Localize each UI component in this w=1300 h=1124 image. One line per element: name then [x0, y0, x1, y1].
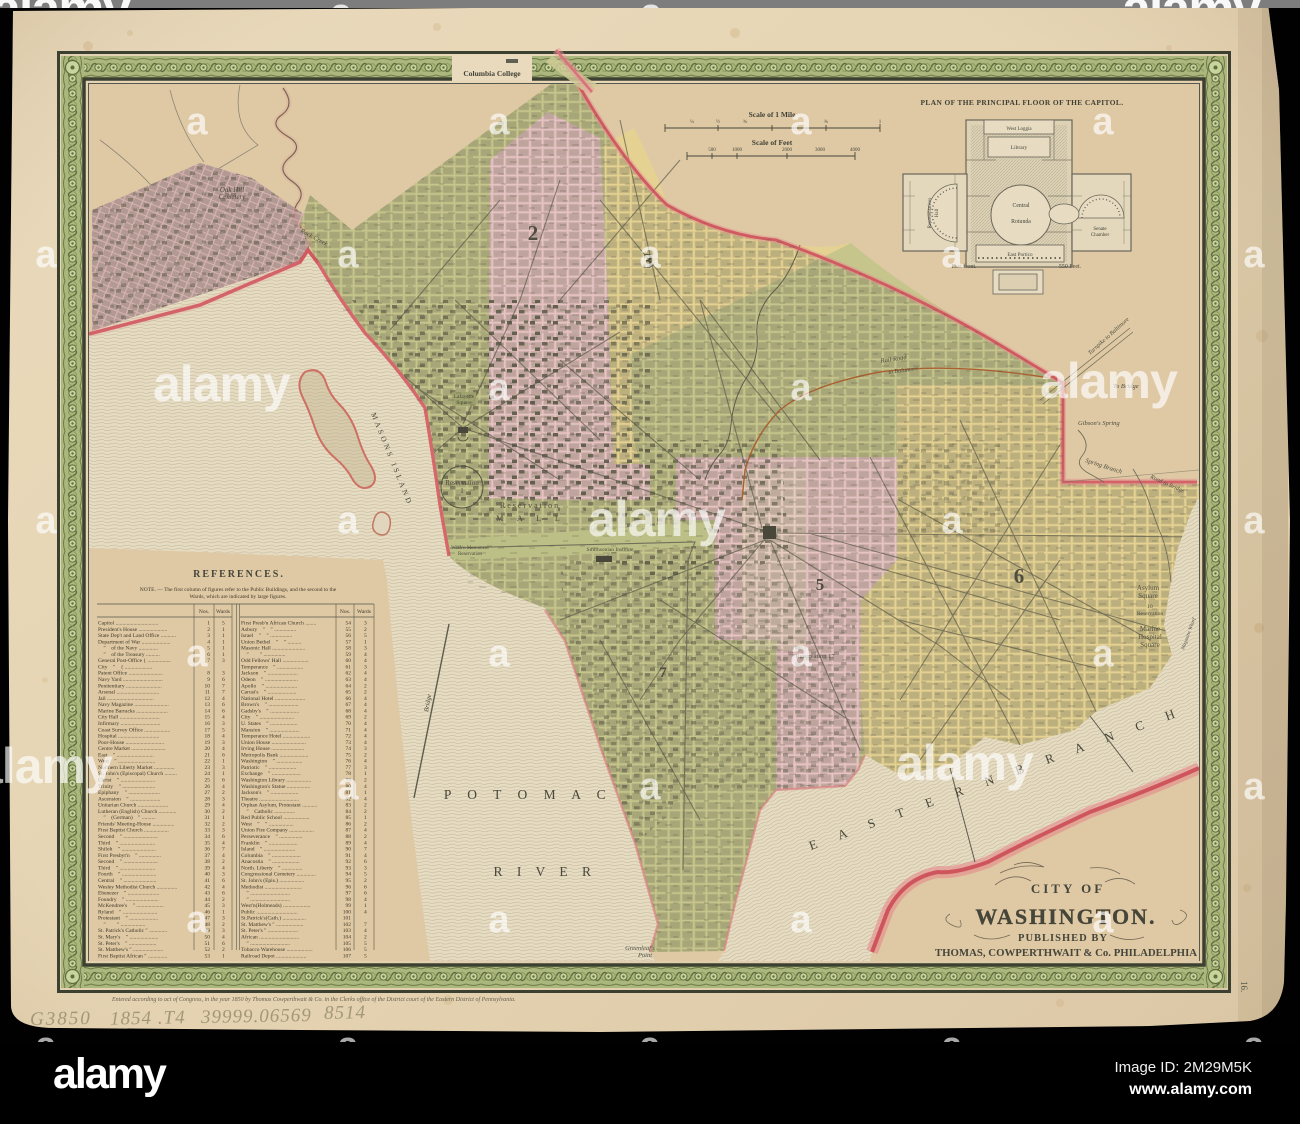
svg-text:4: 4: [364, 727, 367, 733]
svg-text:¾: ¾: [824, 120, 828, 125]
svg-text:2: 2: [207, 627, 210, 633]
svg-text:6: 6: [222, 891, 225, 897]
svg-text:6: 6: [222, 702, 225, 708]
svg-text:2: 2: [222, 790, 225, 796]
svg-text:First Baptist Church .........: First Baptist Church ..................: [98, 828, 169, 834]
svg-text:102: 102: [343, 922, 352, 928]
svg-text:Washington's Statue ..........: Washington's Statue .................: [241, 784, 311, 790]
svg-text:74: 74: [346, 746, 352, 752]
svg-text:Wards, which are indicated by: Wards, which are indicated by large figu…: [190, 593, 288, 600]
svg-text:Nos.: Nos.: [340, 609, 351, 615]
svg-text:Congressional Cemetery .......: Congressional Cemetery ..............: [241, 872, 316, 878]
svg-text:www.alamy.com: www.alamy.com: [1128, 1081, 1252, 1098]
svg-text:37: 37: [205, 853, 211, 859]
svg-text:Jackson's ″ ...............: Jackson's ″ ....................: [241, 790, 299, 796]
svg-text:Second ″ ..................: Second ″ .........................: [98, 859, 158, 865]
svg-text:14: 14: [205, 708, 211, 714]
svg-text:42: 42: [205, 884, 211, 890]
svg-text:53: 53: [205, 953, 211, 959]
svg-text:Protestant ″ ..............: Protestant ″ .....................: [98, 916, 159, 922]
svg-text:20: 20: [205, 746, 211, 752]
svg-text:REFERENCES.: REFERENCES.: [193, 569, 285, 580]
svg-text:West'n(Holmeads) .............: West'n(Holmeads) ....................: [241, 902, 311, 909]
svg-text:3: 3: [222, 765, 225, 771]
svg-text:National Hotel ...............: National Hotel ......................: [241, 696, 306, 702]
svg-text:7: 7: [222, 683, 225, 689]
svg-text:Central: Central: [1012, 203, 1029, 209]
svg-text:2: 2: [222, 947, 225, 953]
svg-text:″ ............................: ″ .............................: [241, 891, 291, 897]
svg-text:4: 4: [207, 639, 210, 645]
svg-text:63: 63: [346, 677, 352, 683]
svg-text:64: 64: [346, 683, 352, 689]
svg-text:Apollo ″ ..................: Apollo ″ .......................: [241, 683, 298, 689]
svg-text:6: 6: [222, 941, 225, 947]
svg-text:a: a: [639, 234, 661, 276]
svg-text:105: 105: [343, 941, 352, 947]
svg-text:4: 4: [364, 702, 367, 708]
svg-text:5: 5: [364, 872, 367, 878]
svg-text:″ ″ ..................: ″ ″ ..................: [98, 922, 146, 928]
svg-text:President's House ............: President's House .....................: [98, 627, 168, 633]
svg-text:31: 31: [205, 815, 211, 821]
svg-text:a: a: [186, 633, 208, 675]
svg-text:2: 2: [222, 859, 225, 865]
svg-text:6: 6: [364, 859, 367, 865]
svg-text:Department of War ............: Department of War .....................: [98, 638, 171, 645]
svg-text:73: 73: [346, 740, 352, 746]
svg-text:92: 92: [346, 859, 352, 865]
svg-text:Union House ..................: Union House .........................: [241, 740, 307, 746]
svg-text:Jackson ″ .................: Jackson ″ ......................: [241, 671, 298, 677]
svg-text:4: 4: [364, 740, 367, 746]
svg-text:62: 62: [346, 671, 352, 677]
svg-text:1: 1: [364, 771, 367, 777]
svg-text:2000: 2000: [782, 148, 793, 153]
svg-text:72: 72: [346, 734, 352, 740]
svg-text:City ″ { ...............: City ″ { ....................: [98, 665, 153, 671]
svg-text:94: 94: [346, 872, 352, 878]
svg-text:6: 6: [364, 891, 367, 897]
svg-text:89: 89: [346, 840, 352, 846]
svg-text:3: 3: [207, 633, 210, 639]
svg-text:Railroad Depot ...............: Railroad Depot ......................: [241, 953, 307, 959]
svg-text:16.: 16.: [1239, 981, 1249, 992]
svg-text:Patent Office ................: Patent Office .........................: [98, 670, 163, 677]
svg-text:U. States ″ ...............: U. States ″ ....................: [241, 721, 298, 727]
svg-text:Brown's ″ .................: Brown's ″ ......................: [241, 702, 299, 708]
svg-text:1: 1: [222, 639, 225, 645]
svg-text:6: 6: [222, 834, 225, 840]
svg-text:19: 19: [205, 740, 211, 746]
svg-text:a: a: [186, 101, 208, 143]
svg-text:Scale of 1 Mile: Scale of 1 Mile: [749, 110, 797, 119]
svg-text:91: 91: [346, 853, 352, 859]
svg-text:alamy: alamy: [1040, 353, 1178, 409]
svg-text:Temperance Hotel .............: Temperance Hotel ....................: [241, 734, 311, 740]
svg-text:2: 2: [222, 809, 225, 815]
svg-text:″ ............................: ″ .............................: [241, 897, 291, 903]
svg-text:Masonic Hall .................: Masonic Hall ........................: [241, 646, 306, 652]
svg-text:2: 2: [364, 878, 367, 884]
svg-text:24: 24: [205, 771, 211, 777]
svg-text:Ebenezer ″ ................: Ebenezer ″ .......................: [98, 891, 160, 897]
svg-text:4: 4: [364, 784, 367, 790]
svg-text:98: 98: [346, 897, 352, 903]
svg-text:Washington ″ ..............: Washington ″ ...................: [241, 759, 303, 765]
svg-text:a: a: [790, 633, 812, 675]
svg-text:″ of the Navy .............: ″ of the Navy ..............: [98, 645, 159, 652]
svg-text:Odeon ″ ...................: Odeon ″ ........................: [241, 677, 298, 683]
svg-text:a: a: [488, 367, 510, 409]
svg-text:68: 68: [346, 708, 352, 714]
svg-text:39999.06569: 39999.06569: [200, 1005, 312, 1028]
svg-text:St. Peter's ″ ...............: St. Peter's ″ ......................: [241, 928, 299, 934]
svg-text:1: 1: [222, 815, 225, 821]
svg-text:4: 4: [222, 784, 225, 790]
svg-text:Wards: Wards: [216, 609, 230, 615]
svg-text:16: 16: [205, 721, 211, 727]
svg-text:″ (German) ″ ..........: ″ (German) ″ ..........: [98, 814, 156, 821]
svg-text:Columbia College: Columbia College: [463, 69, 521, 78]
svg-text:Scale of Feet: Scale of Feet: [752, 138, 793, 147]
svg-text:71: 71: [346, 727, 352, 733]
svg-text:4: 4: [222, 715, 225, 721]
svg-text:33: 33: [205, 828, 211, 834]
svg-text:3: 3: [364, 746, 367, 752]
svg-text:1: 1: [222, 627, 225, 633]
svg-text:21: 21: [205, 752, 211, 758]
svg-text:Israel ″ ″ .............: Israel ″ ″ ................: [241, 633, 293, 639]
svg-text:70: 70: [346, 721, 352, 727]
svg-text:North. Liberty ″ ..........: North. Liberty ″ ...............: [241, 865, 303, 871]
svg-text:3: 3: [222, 916, 225, 922]
svg-text:a: a: [488, 899, 510, 941]
svg-text:alamy: alamy: [153, 356, 291, 412]
svg-text:5: 5: [207, 646, 210, 652]
svg-text:4: 4: [222, 734, 225, 740]
svg-text:Unitarian Church .............: Unitarian Church ......................: [98, 803, 169, 809]
svg-text:6: 6: [222, 677, 225, 683]
svg-text:55: 55: [346, 627, 352, 633]
svg-text:State Dep't and Land Office ..: State Dep't and Land Office ...........: [98, 632, 176, 639]
svg-text:2: 2: [364, 683, 367, 689]
svg-text:a: a: [790, 899, 812, 941]
svg-text:30: 30: [205, 809, 211, 815]
svg-text:8: 8: [207, 671, 210, 677]
svg-text:96: 96: [346, 884, 352, 890]
svg-text:4: 4: [364, 897, 367, 903]
svg-text:Anacostia ″ ...............: Anacostia ″ ....................: [241, 859, 300, 865]
svg-text:4: 4: [222, 853, 225, 859]
svg-text:a: a: [488, 633, 510, 675]
svg-text:17: 17: [205, 727, 211, 733]
svg-text:2: 2: [364, 809, 367, 815]
svg-text:Chamber: Chamber: [1091, 233, 1110, 238]
svg-text:Theatre ......................: Theatre .............................: [241, 796, 300, 802]
svg-text:75: 75: [346, 752, 352, 758]
svg-text:2: 2: [364, 627, 367, 633]
svg-text:28: 28: [205, 796, 211, 802]
svg-text:7: 7: [222, 847, 225, 853]
svg-text:a: a: [488, 101, 510, 143]
svg-text:500: 500: [708, 148, 716, 153]
svg-text:Infirmary ....................: Infirmary .............................: [98, 720, 161, 727]
svg-text:12: 12: [205, 696, 211, 702]
svg-text:Marine Barracks ..............: Marine Barracks .......................: [98, 708, 168, 714]
svg-text:35: 35: [205, 840, 211, 846]
svg-text:Ryland ″ ..................: Ryland ″ .........................: [98, 909, 158, 915]
svg-text:Mansion ″ .................: Mansion ″ ......................: [241, 727, 300, 733]
svg-text:Methodist ....................: Methodist ...........................: [241, 884, 302, 890]
svg-text:2: 2: [364, 834, 367, 840]
svg-text:West ″ ″ ...............: West ″ ″ ..................: [241, 822, 294, 828]
svg-text:Metropolis Bank ..............: Metropolis Bank .....................: [241, 752, 309, 758]
svg-text:3000: 3000: [815, 148, 826, 153]
svg-text:4: 4: [364, 721, 367, 727]
svg-text:107: 107: [343, 953, 352, 959]
svg-text:a: a: [35, 500, 57, 542]
svg-text:5: 5: [364, 633, 367, 639]
svg-text:5: 5: [222, 727, 225, 733]
svg-text:alamy: alamy: [53, 1050, 167, 1098]
svg-text:a: a: [337, 766, 359, 808]
svg-text:4: 4: [222, 935, 225, 941]
svg-text:Carusi's ″ ................: Carusi's ″ .....................: [241, 690, 297, 696]
svg-text:a: a: [337, 234, 359, 276]
svg-text:Tobacco Warehouse ............: Tobacco Warehouse ...................: [241, 947, 313, 953]
svg-text:4: 4: [364, 909, 367, 915]
svg-text:3: 3: [222, 828, 225, 834]
svg-text:88: 88: [346, 834, 352, 840]
svg-text:Public .......................: Public ..............................: [241, 909, 298, 915]
svg-text:6: 6: [364, 884, 367, 890]
svg-text:4: 4: [364, 671, 367, 677]
svg-text:5: 5: [364, 953, 367, 959]
svg-text:4: 4: [364, 677, 367, 683]
svg-text:St. Matthew's ″ .............: St. Matthew's ″ ....................: [241, 922, 304, 928]
svg-text:1000: 1000: [732, 148, 743, 153]
svg-text:Asbury ″ ″ .............: Asbury ″ ″ ................: [241, 627, 297, 633]
svg-text:Union Bethel ″ ″ .......: Union Bethel ″ ″ ..........: [241, 639, 302, 645]
svg-text:Navy Yard ....................: Navy Yard .............................: [98, 677, 163, 683]
svg-text:alamy: alamy: [588, 491, 726, 547]
svg-text:103: 103: [343, 928, 352, 934]
svg-text:a: a: [941, 500, 963, 542]
svg-text:Wards: Wards: [357, 609, 371, 615]
svg-text:1: 1: [222, 646, 225, 652]
svg-text:60: 60: [346, 658, 352, 664]
svg-text:a: a: [1092, 101, 1114, 143]
svg-text:4: 4: [364, 708, 367, 714]
svg-text:13: 13: [205, 702, 211, 708]
svg-text:Washington Library ...........: Washington Library ..................: [241, 778, 312, 784]
svg-text:1: 1: [222, 633, 225, 639]
svg-text:City Hall ....................: City Hall .............................: [98, 715, 160, 721]
svg-text:City ″ ....................: City ″ .........................: [241, 715, 295, 721]
svg-text:Representatives: Representatives: [928, 198, 933, 229]
svg-text:a: a: [1243, 234, 1265, 276]
svg-text:6: 6: [222, 778, 225, 784]
svg-text:Temperance ″ ..............: Temperance ″ ...................: [241, 665, 304, 671]
svg-text:Central ″ .................: Central ″ ........................: [98, 878, 157, 884]
svg-text:2: 2: [364, 822, 367, 828]
svg-text:32: 32: [205, 822, 211, 828]
svg-text:54: 54: [346, 621, 352, 627]
svg-text:1: 1: [222, 759, 225, 765]
svg-text:a: a: [639, 766, 661, 808]
svg-text:8514: 8514: [324, 1002, 366, 1024]
svg-text:5: 5: [222, 621, 225, 627]
svg-text:29: 29: [205, 803, 211, 809]
svg-text:4: 4: [364, 840, 367, 846]
svg-text:87: 87: [346, 828, 352, 834]
svg-text:a: a: [35, 234, 57, 276]
svg-text:″ ............................: ″ .............................: [241, 941, 291, 947]
svg-text:1: 1: [222, 909, 225, 915]
svg-text:2: 2: [364, 752, 367, 758]
svg-text:10: 10: [205, 683, 211, 689]
svg-text:a: a: [790, 367, 812, 409]
svg-text:Red Public School ............: Red Public School ...................: [241, 815, 310, 821]
svg-text:a: a: [186, 899, 208, 941]
svg-text:Jail .........................: Jail ..................................: [98, 696, 154, 702]
svg-text:Columbia ″ ................: Columbia ″ .....................: [241, 853, 301, 859]
svg-text:4: 4: [364, 652, 367, 658]
svg-text:McKendree's ″ .............: McKendree's ″ ....................: [98, 903, 164, 909]
svg-text:2: 2: [222, 922, 225, 928]
svg-text:Nos.: Nos.: [199, 609, 210, 615]
svg-text:Irving House .................: Irving House ........................: [241, 746, 305, 752]
svg-text:76: 76: [346, 759, 352, 765]
svg-text:84: 84: [346, 809, 352, 815]
svg-text:51: 51: [205, 941, 211, 947]
svg-text:Arsenal ......................: Arsenal ...............................: [98, 690, 160, 696]
svg-text:a: a: [941, 234, 963, 276]
svg-text:alamy: alamy: [896, 735, 1034, 791]
svg-text:2: 2: [364, 803, 367, 809]
svg-text:6: 6: [222, 878, 225, 884]
svg-text:″ ″ ................: ″ ″ ................: [241, 652, 286, 658]
svg-text:Odd Fellows' Hall ............: Odd Fellows' Hall ...................: [241, 658, 309, 664]
svg-text:66: 66: [346, 696, 352, 702]
svg-text:4: 4: [222, 803, 225, 809]
svg-text:St.Patrick's(Cath.) ..........: St.Patrick's(Cath.) .................: [241, 915, 306, 922]
svg-text:86: 86: [346, 822, 352, 828]
svg-text:3: 3: [222, 658, 225, 664]
svg-text:104: 104: [343, 935, 352, 941]
svg-text:3: 3: [222, 928, 225, 934]
svg-text:550 Feet.: 550 Feet.: [1059, 264, 1082, 270]
svg-text:9: 9: [207, 677, 210, 683]
svg-text:23: 23: [205, 765, 211, 771]
svg-text:Gadsby's ″ ................: Gadsby's ″ .....................: [241, 708, 300, 714]
svg-text:6: 6: [207, 652, 210, 658]
svg-text:85: 85: [346, 815, 352, 821]
svg-text:7: 7: [207, 658, 210, 664]
svg-text:Perseverance ″ ............: Perseverance ″ .................: [241, 834, 303, 840]
svg-text:WASHINGTON.: WASHINGTON.: [975, 904, 1156, 929]
svg-text:Lutheran (English) Church ....: Lutheran (English) Church .............: [98, 808, 177, 815]
svg-text:3: 3: [364, 765, 367, 771]
svg-text:34: 34: [205, 834, 211, 840]
svg-text:99: 99: [346, 903, 352, 909]
svg-text:St. Peter's ″ .............: St. Peter's ″ ....................: [98, 941, 157, 947]
svg-text:Shiloh ″ ..................: Shiloh ″ .........................: [98, 847, 157, 853]
svg-text:22: 22: [205, 759, 211, 765]
svg-text:4: 4: [364, 734, 367, 740]
svg-text:Wesley Methodist Church ......: Wesley Methodist Church ...............: [98, 884, 178, 890]
svg-text:4: 4: [364, 928, 367, 934]
svg-text:West Loggia: West Loggia: [1006, 127, 1032, 132]
svg-text:3: 3: [364, 646, 367, 652]
svg-text:58: 58: [346, 646, 352, 652]
svg-text:Foundry ″ .................: Foundry ″ ........................: [98, 897, 159, 903]
svg-text:4: 4: [364, 796, 367, 802]
svg-text:3: 3: [364, 665, 367, 671]
svg-text:Island ″ ..................: Island ″ .......................: [241, 847, 296, 853]
svg-text:106: 106: [343, 947, 352, 953]
svg-text:93: 93: [346, 865, 352, 871]
svg-text:Fourth ″ ..................: Fourth ″ .........................: [98, 872, 157, 878]
svg-text:Patriotic ″ ...............: Patriotic ″ ....................: [241, 765, 297, 771]
svg-text:6: 6: [222, 708, 225, 714]
svg-text:4: 4: [222, 840, 225, 846]
svg-text:36: 36: [205, 847, 211, 853]
svg-text:5: 5: [364, 941, 367, 947]
svg-text:40: 40: [205, 872, 211, 878]
svg-text:2: 2: [222, 822, 225, 828]
svg-text:5: 5: [364, 947, 367, 953]
svg-text:″ of the Treasury .........: ″ of the Treasury ..........: [98, 651, 160, 658]
svg-text:1854 .T4: 1854 .T4: [110, 1007, 186, 1029]
svg-text:38: 38: [205, 859, 211, 865]
svg-text:African ......................: African .............................: [241, 934, 300, 941]
svg-text:Navy Magazine ................: Navy Magazine .........................: [98, 702, 169, 708]
svg-text:a: a: [790, 101, 812, 143]
svg-text:3: 3: [222, 872, 225, 878]
svg-text:1: 1: [222, 953, 225, 959]
svg-text:1: 1: [222, 652, 225, 658]
svg-text:Third ″ ...................: Third ″ ..........................: [98, 865, 156, 871]
svg-text:3: 3: [364, 865, 367, 871]
svg-text:2: 2: [364, 715, 367, 721]
svg-text:27: 27: [205, 790, 211, 796]
svg-text:Rotunda: Rotunda: [1011, 219, 1031, 225]
svg-text:4: 4: [222, 884, 225, 890]
svg-text:Ascension ″ ...............: Ascension ″ ......................: [98, 796, 161, 802]
svg-text:St. Matthew's ″ .............: St. Matthew's ″ ......................: [98, 947, 164, 953]
svg-text:Friends' Meeting-House .......: Friends' Meeting-House ................: [98, 822, 175, 828]
svg-text:Image ID: 2M29M5K: Image ID: 2M29M5K: [1114, 1059, 1252, 1076]
svg-text:a: a: [1243, 500, 1265, 542]
svg-text:Entered according to act of C: Entered according to act of Congress, in…: [111, 996, 515, 1003]
svg-text:¾: ¾: [743, 120, 747, 125]
svg-text:3: 3: [222, 796, 225, 802]
svg-text:Third ″ ...................: Third ″ ..........................: [98, 840, 156, 846]
svg-text:1: 1: [364, 815, 367, 821]
svg-text:15: 15: [205, 715, 211, 721]
svg-text:57: 57: [346, 639, 352, 645]
svg-text:6: 6: [222, 752, 225, 758]
svg-text:3: 3: [222, 903, 225, 909]
svg-text:43: 43: [205, 891, 211, 897]
svg-text:1: 1: [364, 903, 367, 909]
svg-text:a: a: [1092, 899, 1114, 941]
svg-text:39: 39: [205, 865, 211, 871]
svg-text:1: 1: [222, 771, 225, 777]
svg-text:Second ″ ..................: Second ″ .........................: [98, 834, 158, 840]
